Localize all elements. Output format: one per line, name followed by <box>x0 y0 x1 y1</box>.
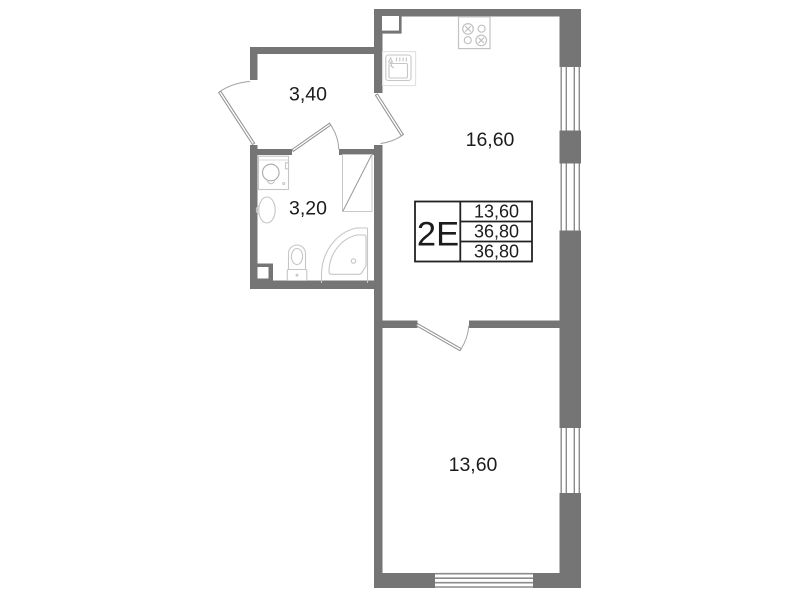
svg-text:3,20: 3,20 <box>289 198 327 220</box>
svg-text:13,60: 13,60 <box>449 454 498 476</box>
svg-text:13,60: 13,60 <box>474 202 519 222</box>
svg-text:16,60: 16,60 <box>466 129 515 151</box>
svg-text:36,80: 36,80 <box>474 222 519 242</box>
svg-text:36,80: 36,80 <box>474 242 519 262</box>
svg-text:3,40: 3,40 <box>289 84 327 106</box>
svg-text:2E: 2E <box>417 216 459 254</box>
